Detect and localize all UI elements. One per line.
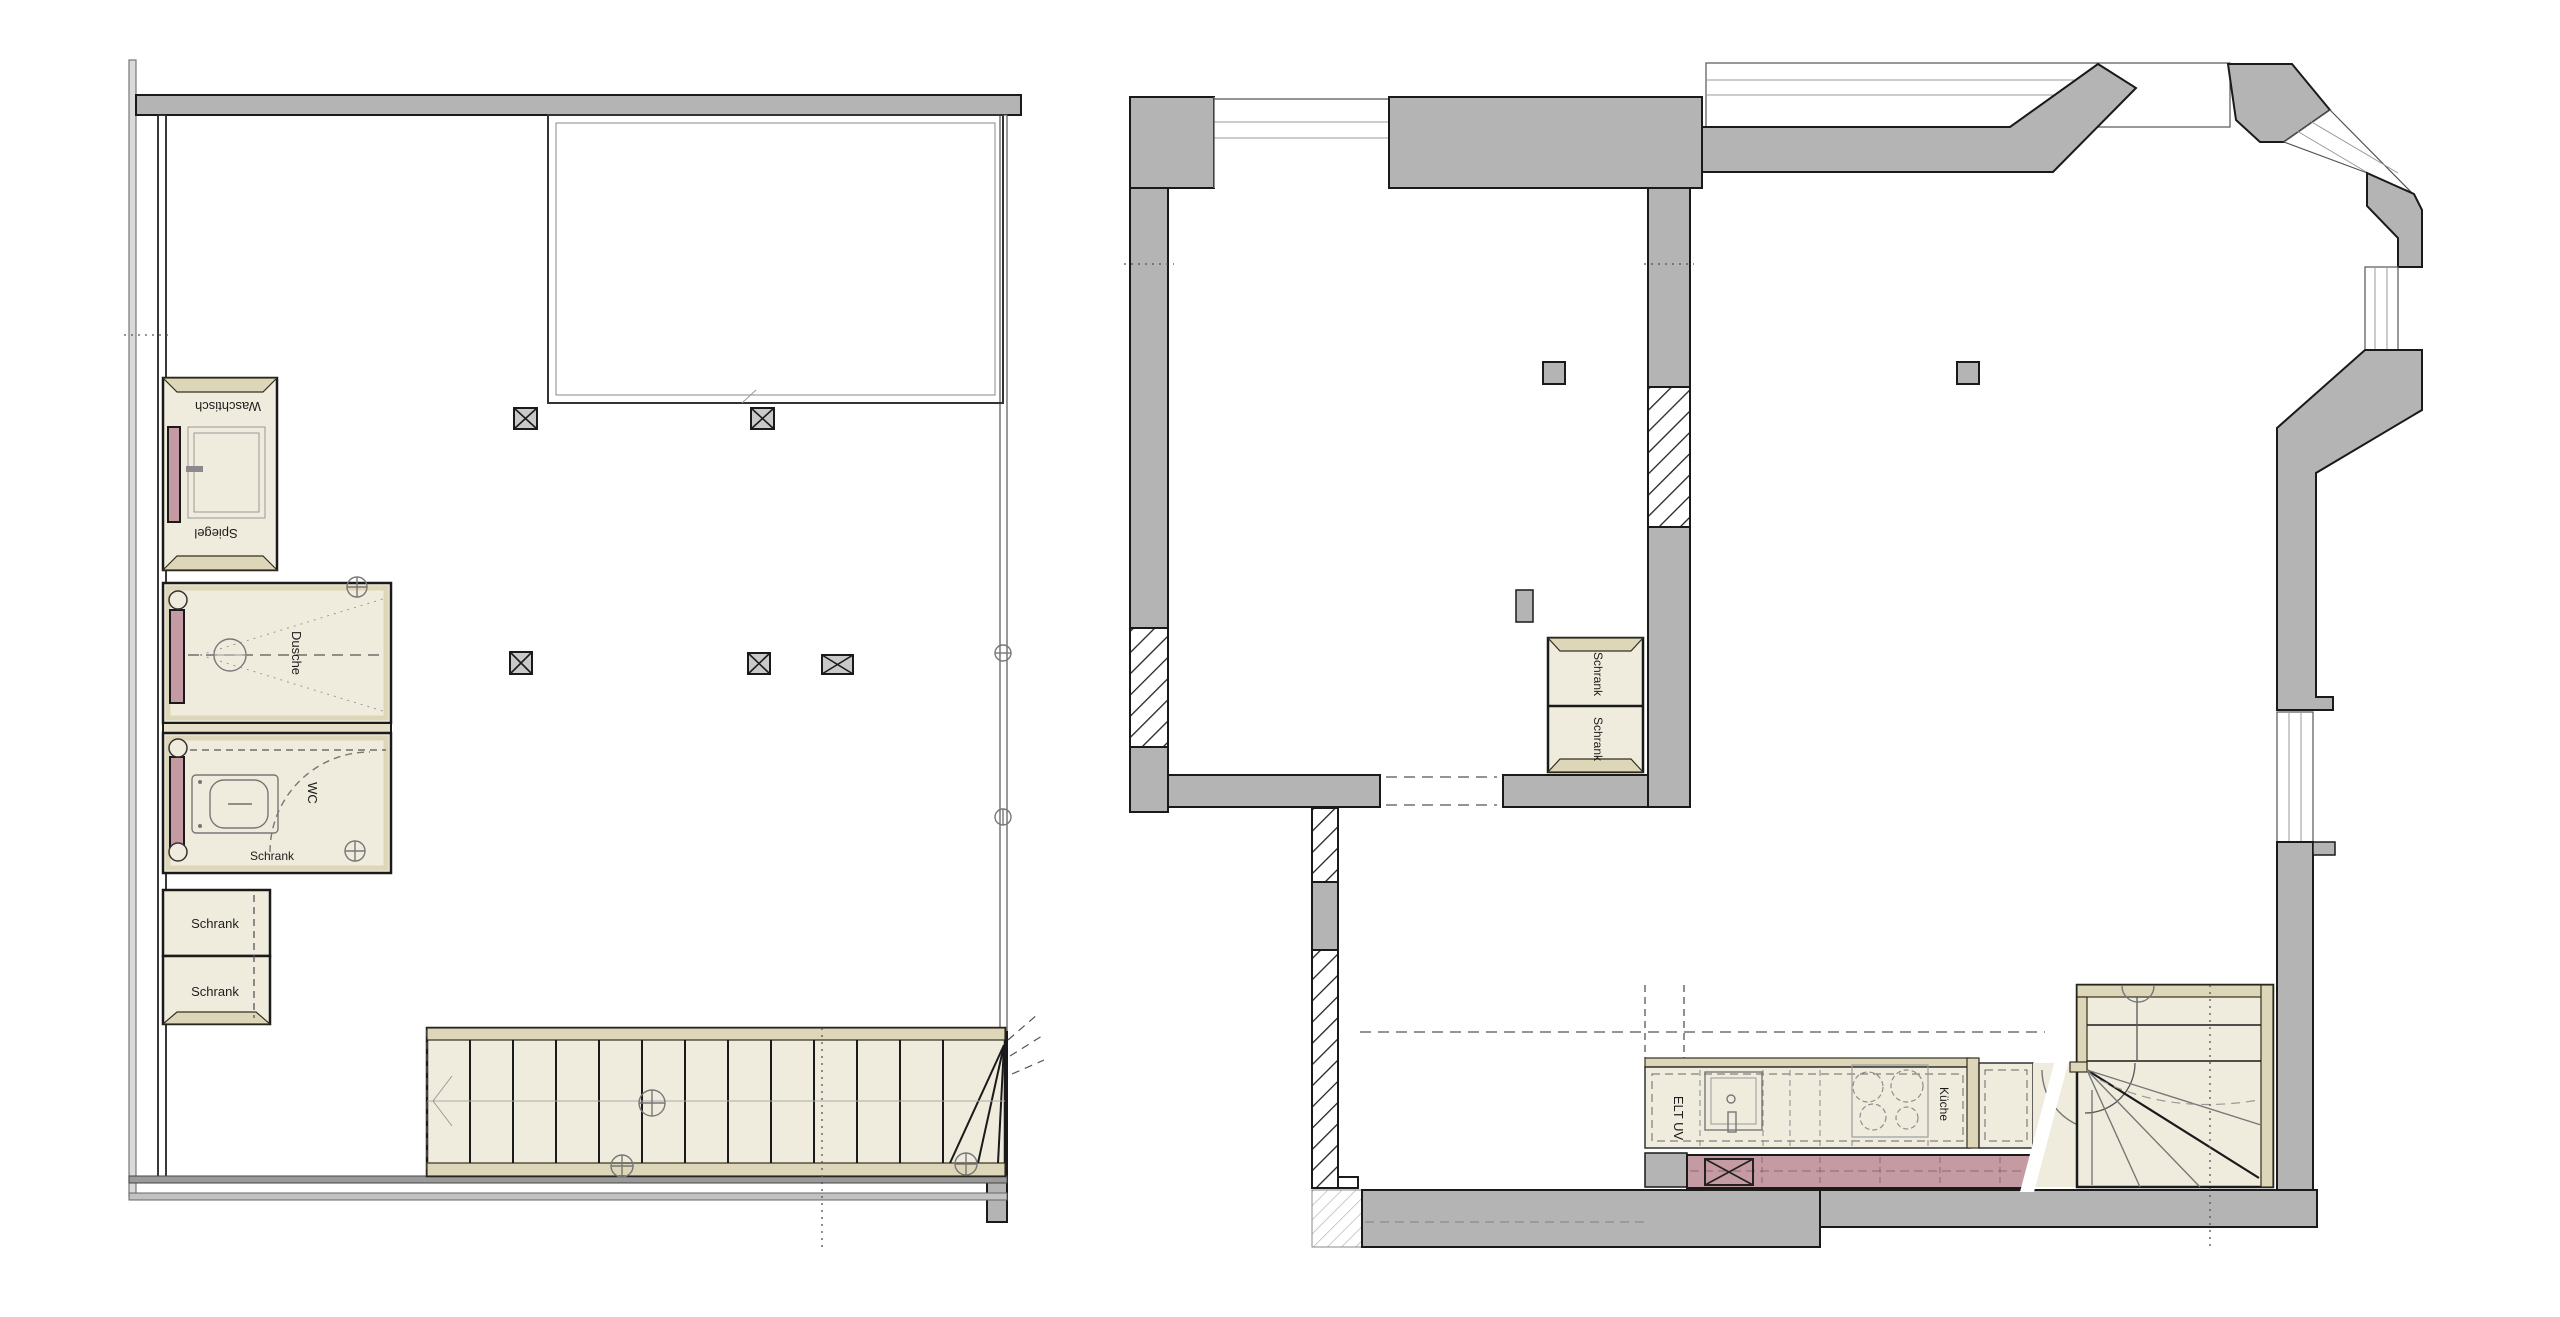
- terrace-edge: [129, 1193, 1007, 1200]
- stair-continuation-dashes: [1008, 1014, 1044, 1074]
- door-jamb: [1338, 1177, 1358, 1188]
- column-x-icon: [748, 653, 770, 674]
- floor-plan-drawing: Waschtisch Spiegel Dusche: [0, 0, 2560, 1317]
- stair-stringer: [2261, 985, 2273, 1187]
- column-icon: [1543, 362, 1565, 384]
- cabinet-bevel: [163, 556, 277, 570]
- straight-staircase: [427, 1014, 1044, 1250]
- right-wall-lower: [2277, 842, 2313, 1227]
- shower-room: Dusche: [163, 577, 391, 733]
- closet-cabinets: Schrank Schrank: [163, 890, 270, 1024]
- column-x-icon: [510, 652, 532, 674]
- left-wall-lower: [1130, 747, 1168, 812]
- door-hinge-icon: [169, 843, 187, 861]
- wc-closet-label: Schrank: [250, 849, 295, 863]
- washstand-unit: Waschtisch Spiegel: [163, 378, 277, 570]
- roof-opening-outline: [548, 115, 1003, 403]
- top-wall: [136, 95, 1021, 115]
- closet-cabinets: Schrank Schrank: [1548, 638, 1643, 772]
- closet-label: Schrank: [191, 984, 239, 999]
- column-x-icon: [822, 655, 853, 674]
- wc-label: WC: [305, 782, 320, 804]
- wc-door: [170, 757, 184, 850]
- side-window: [2365, 267, 2398, 350]
- right-window: [2277, 712, 2313, 842]
- door-hinge-icon: [169, 591, 187, 609]
- survey-mark-icon: [347, 577, 367, 597]
- outer-left-wall: [129, 60, 136, 1196]
- centre-wall: [1648, 188, 1690, 387]
- left-wall-hatched: [1130, 628, 1168, 747]
- bottom-wall-right: [1820, 1190, 2317, 1227]
- bottom-corner-light: [1312, 1190, 1362, 1247]
- wc-room: WC Schrank: [163, 733, 391, 873]
- bottom-wall-left: [1362, 1190, 1820, 1247]
- kitchen-counter-2: [1979, 1063, 2033, 1148]
- closet-label: Schrank: [1591, 652, 1605, 697]
- floor-plan-sheet: Waschtisch Spiegel Dusche: [0, 0, 2560, 1317]
- closet-label: Schrank: [1591, 717, 1605, 762]
- low-wall: [1312, 882, 1338, 950]
- door-opening: [1386, 777, 1497, 805]
- electrical-label: ELT UV: [1671, 1096, 1686, 1141]
- faucet-icon: [186, 466, 203, 472]
- kitchen-label: Küche: [1937, 1087, 1951, 1121]
- stair-stringer: [2077, 997, 2087, 1070]
- kitchen: ELT UV Küche: [1360, 985, 2045, 1188]
- survey-mark-icon: [639, 1090, 665, 1116]
- bay-pier: [2367, 173, 2422, 267]
- mirror-strip: [168, 427, 180, 522]
- partition-wall: [163, 723, 391, 733]
- right-wall-upper: [2277, 350, 2422, 710]
- corner-wall: [1130, 97, 1214, 188]
- mid-wall: [1168, 775, 1380, 807]
- column-icon: [1957, 362, 1979, 384]
- centre-wall-hatched: [1648, 387, 1690, 527]
- wall-stub: [1516, 590, 1533, 622]
- low-wall-hatched: [1312, 950, 1338, 1188]
- left-wall: [1130, 188, 1168, 628]
- shower-door: [170, 610, 184, 703]
- top-wall: [1389, 97, 1702, 188]
- door-hinge-icon: [169, 739, 187, 757]
- right-floor-plan: Schrank Schrank: [1124, 63, 2422, 1250]
- column-symbols: [510, 408, 853, 674]
- column-x-icon: [514, 408, 537, 429]
- low-wall-hatched: [1312, 808, 1338, 882]
- column-x-icon: [751, 408, 774, 429]
- bay-window: [1702, 63, 2422, 350]
- mirror-label: Spiegel: [194, 526, 237, 541]
- washstand-label: Waschtisch: [195, 399, 261, 414]
- window-flange: [2313, 842, 2335, 855]
- centre-wall-lower: [1648, 527, 1690, 807]
- shaft-block: [1645, 1153, 1687, 1187]
- window-opening: [1214, 97, 1389, 188]
- cabinet-bevel: [163, 378, 277, 392]
- counter-divider: [1967, 1058, 1979, 1148]
- survey-mark-icon: [955, 1153, 977, 1175]
- survey-mark-icon: [611, 1155, 633, 1177]
- cabinet-bevel: [1548, 638, 1643, 651]
- stringer-foot: [2070, 1062, 2087, 1072]
- left-floor-plan: Waschtisch Spiegel Dusche: [124, 60, 1044, 1250]
- mid-wall: [1503, 775, 1648, 807]
- worktop-strip: [1687, 1155, 2033, 1188]
- survey-mark-icon: [345, 841, 365, 861]
- shower-label: Dusche: [289, 631, 304, 675]
- closet-label: Schrank: [191, 916, 239, 931]
